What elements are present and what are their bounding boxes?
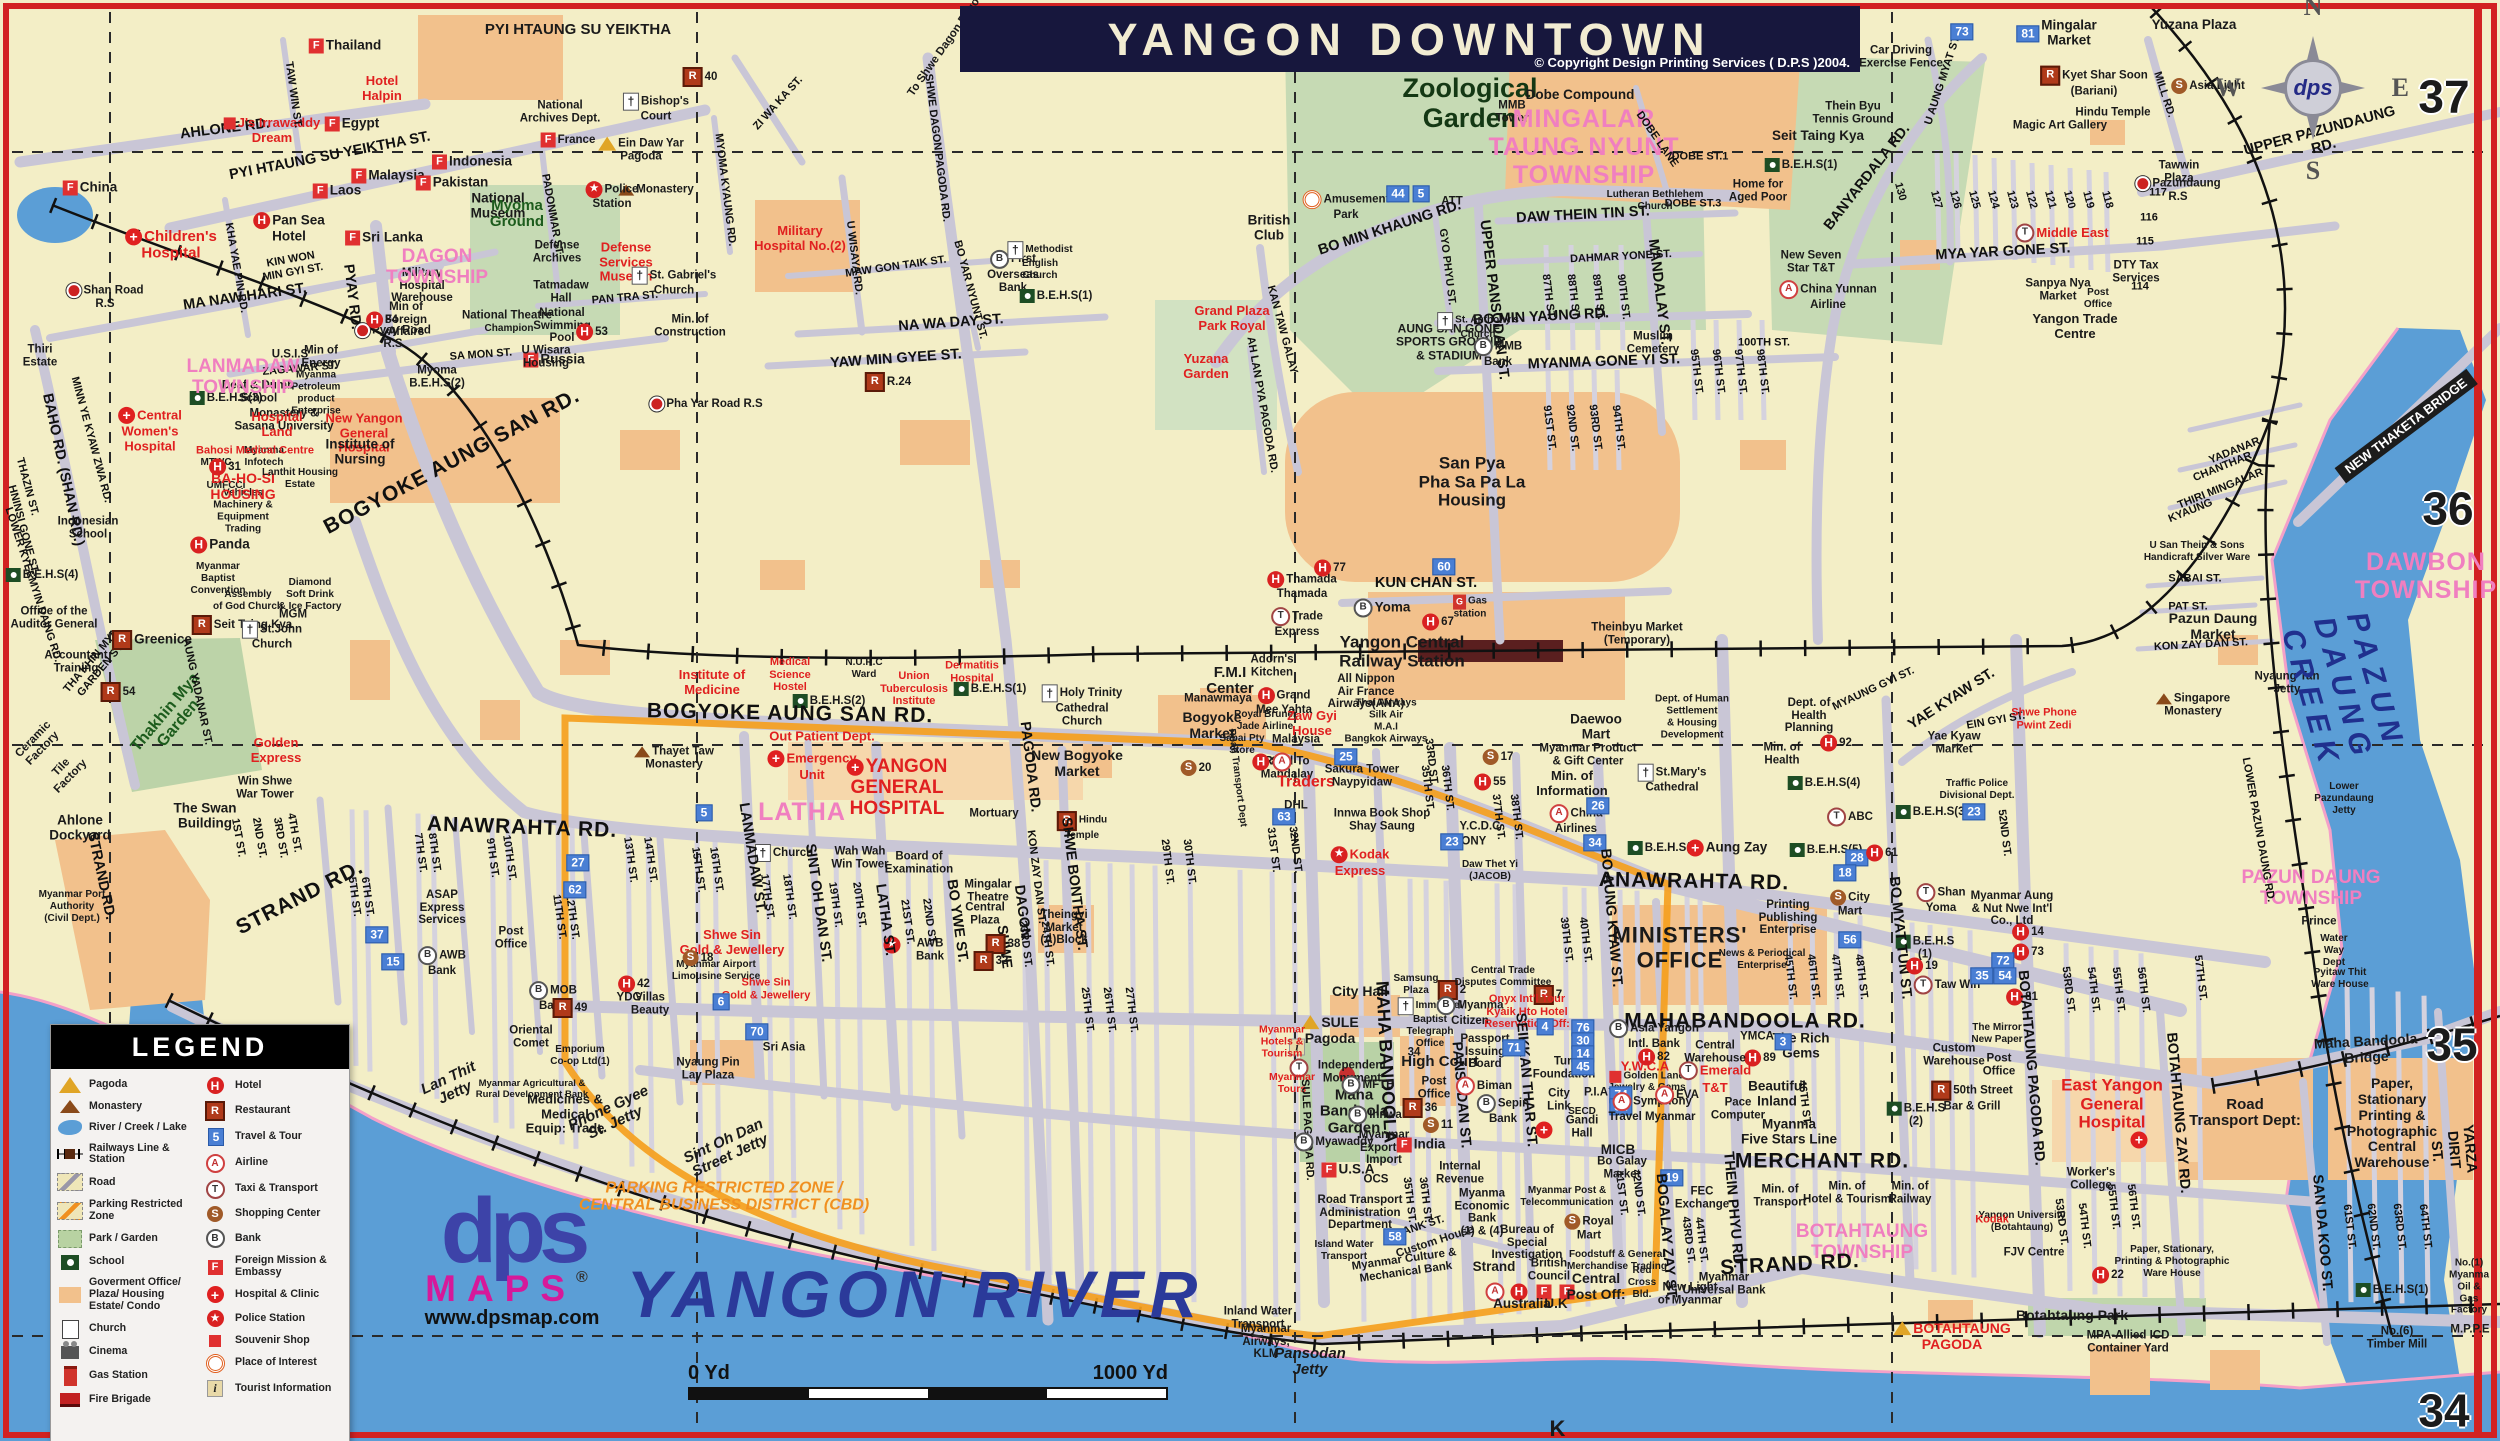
street-label: 16TH ST. xyxy=(706,846,725,893)
a-icon: A xyxy=(1273,753,1292,772)
f-icon: F xyxy=(63,181,78,196)
map-label: BInnwa xyxy=(1348,1106,1402,1125)
map-label: Sanpya Nya Market xyxy=(2025,277,2090,302)
map-label: Military Hospital No.(2) xyxy=(754,223,846,252)
street-label: 126 xyxy=(1945,189,1962,210)
map-label: LATHA xyxy=(758,798,846,826)
street-label: 118 xyxy=(2098,190,2115,210)
map-label: YDG xyxy=(617,992,642,1005)
map-label: Kodak xyxy=(1975,1215,2009,1228)
legend-item-label: Goverment Office/ Plaza/ Housing Estate/… xyxy=(89,1277,199,1313)
map-label: H92 xyxy=(1820,735,1852,752)
map-label: Hotel Halpin xyxy=(362,73,402,102)
legend-item: HHotel xyxy=(203,1077,345,1094)
legend-river-creek-lake-icon xyxy=(58,1120,82,1135)
street-label: 122 xyxy=(2021,189,2038,210)
legend-item-label: Bank xyxy=(235,1233,261,1245)
map-label: Myanmar Agricultural & Rural Development… xyxy=(476,1079,588,1101)
map-label: Post Office xyxy=(1983,1052,2016,1077)
map-label: †Methodist English Church xyxy=(1007,241,1072,283)
legend-hospital-clinic-icon: + xyxy=(207,1286,224,1303)
legend-foreign-mission-embassy-icon: F xyxy=(208,1260,223,1275)
r-icon: R xyxy=(101,682,121,702)
street-label: 95TH ST. xyxy=(1686,348,1704,395)
map-label: YANGON RIVER xyxy=(627,1254,1204,1330)
street-label: KON ZAY DAN ST. xyxy=(2154,637,2249,655)
legend-road-icon xyxy=(57,1173,83,1191)
map-label: FPakistan xyxy=(416,176,489,191)
legend-item-label: Shopping Center xyxy=(235,1208,320,1220)
map-label: †St. Anthony's Church xyxy=(1437,312,1519,342)
street-label: 64TH ST. xyxy=(2415,1203,2433,1250)
cross-icon: + xyxy=(847,759,864,776)
legend-item: Road xyxy=(57,1173,199,1191)
ch-icon: † xyxy=(242,621,258,639)
map-label: Medical Science Hostel xyxy=(769,657,811,695)
map-label: Thiri Estate xyxy=(23,343,58,368)
map-label: R49 xyxy=(553,998,588,1018)
f-icon: F xyxy=(1321,1163,1336,1178)
map-label: 62 xyxy=(563,881,586,898)
f-icon: F xyxy=(416,176,431,191)
map-label: †Bishop's Court xyxy=(623,93,689,124)
page-number: 36 xyxy=(2422,482,2473,535)
legend-item-label: Cinema xyxy=(89,1346,127,1358)
street-label: 13TH ST. xyxy=(620,836,639,883)
map-label: Amusement Park xyxy=(1303,190,1390,222)
poi-icon xyxy=(1303,190,1322,209)
map-label: Dobe Compound xyxy=(1526,88,1635,103)
map-label: Central Trade Disputes Committee xyxy=(1455,966,1552,990)
map-label: Ceramic Factory xyxy=(13,719,63,769)
h-icon: H xyxy=(2092,1267,2109,1284)
map-label: Myanmar Aung & Nut Nwe Int'l Co., Ltd xyxy=(1971,890,2054,928)
ch-icon: † xyxy=(1638,764,1654,782)
map-label: Internal Revenue xyxy=(1436,1160,1484,1185)
map-label: Indonesian School xyxy=(58,515,119,540)
map-label: Win Shwe War Tower xyxy=(236,775,294,800)
f-icon: F xyxy=(345,231,360,246)
map-canvas: AHLONE RD.MA NAW HARI ST.BAHO RD. (SHAN … xyxy=(0,0,2500,1441)
map-label: ASAP Express Services xyxy=(418,889,465,927)
legend-item: Fire Brigade xyxy=(57,1393,199,1407)
street-label: 26TH ST. xyxy=(1099,986,1117,1033)
street-label: 125 xyxy=(1964,189,1981,210)
map-label: + xyxy=(1536,1122,1555,1139)
b-icon: B xyxy=(1436,996,1455,1015)
map-label: TABC xyxy=(1827,808,1873,827)
street-label: 98TH ST. xyxy=(1752,348,1770,395)
map-label: B.E.H.S(1) xyxy=(1020,289,1093,303)
map-label: Australia xyxy=(1493,1297,1551,1312)
legend-item: BBank xyxy=(203,1229,345,1248)
map-label: Min. of Information xyxy=(1536,768,1608,797)
street-label: 25TH ST. xyxy=(1077,986,1095,1033)
street-label: MYOMA KYAUNG RD. xyxy=(711,133,737,247)
legend-monastery-icon xyxy=(60,1100,80,1113)
map-labels-layer: AHLONE RD.MA NAW HARI ST.BAHO RD. (SHAN … xyxy=(0,0,2500,1441)
rs-icon xyxy=(2135,176,2150,191)
map-label: Ein Daw Yar Pagoda xyxy=(598,137,684,164)
street-label: 121 xyxy=(2040,189,2057,210)
compass-w-label: W xyxy=(2215,73,2241,103)
t-icon: T xyxy=(1271,607,1290,626)
legend-shopping-center-icon: S xyxy=(207,1206,223,1222)
map-label: Road Transport Dept: xyxy=(2189,1097,2301,1130)
legend-item-label: Hotel xyxy=(235,1080,261,1092)
map-label: Pansodan Jetty xyxy=(1274,1346,1346,1379)
street-label: DOBE ST.1 xyxy=(1672,152,1729,165)
map-label: Lanthit Housing Estate xyxy=(262,468,338,492)
t-icon: T xyxy=(2015,224,2034,243)
street-label: LATHA ST. xyxy=(871,883,897,957)
legend-item: Church xyxy=(57,1320,199,1339)
ch-icon: † xyxy=(1437,312,1453,330)
legend-item: Goverment Office/ Plaza/ Housing Estate/… xyxy=(57,1277,199,1313)
map-label: Myoma B.E.H.S(2) xyxy=(409,364,465,389)
map-label: Mingalar Theatre xyxy=(964,878,1011,903)
map-label: No.(6) Timber Mill xyxy=(2367,1325,2428,1350)
cross-icon: + xyxy=(118,407,135,424)
street-label: MYA YAR GONE ST. xyxy=(1935,241,2071,264)
map-label: 5 xyxy=(696,804,713,821)
legend-right-column: HHotelRRestaurant5Travel & TourAAirlineT… xyxy=(203,1077,345,1407)
legend-item-label: Railways Line & Station xyxy=(89,1143,199,1167)
map-label: Magic Art Gallery xyxy=(2013,120,2107,133)
map-label: H55 xyxy=(1474,774,1506,791)
map-label: Botahtaung Park xyxy=(2016,1307,2128,1323)
street-label: 18TH ST. xyxy=(779,873,798,920)
map-label: Dept. of Human Settlement & Housing Deve… xyxy=(1655,694,1729,741)
map-label: M.P.P.E xyxy=(2450,1324,2489,1337)
legend-railways-line-station-icon xyxy=(57,1149,83,1159)
map-label: Mingalar Market xyxy=(2041,18,2097,47)
h-icon: H xyxy=(1267,571,1284,588)
map-label: 35 xyxy=(1970,967,1993,984)
map-label: B.E.H.S(1) xyxy=(954,682,1027,696)
street-label: 17TH ST. xyxy=(757,873,776,920)
map-label: The Mirror New Paper xyxy=(1971,1023,2022,1047)
map-label: Nyaung Pin Lay Plaza xyxy=(676,1056,739,1081)
f-icon: F xyxy=(541,133,556,148)
map-label: Post Office xyxy=(2084,288,2112,312)
map-label: Myanma Five Stars Line xyxy=(1741,1117,1837,1146)
dps-logo: dps xyxy=(392,1192,632,1270)
map-label: H77 xyxy=(1314,560,1346,577)
h-icon: H xyxy=(253,212,270,229)
ch-icon: † xyxy=(1007,241,1023,259)
map-label: Adorn's Kitchen xyxy=(1251,653,1294,678)
map-label: 58 xyxy=(1383,1228,1406,1245)
map-label: H61 xyxy=(1866,845,1898,862)
sch-icon xyxy=(1765,158,1780,172)
map-label: 63 xyxy=(1272,808,1295,825)
map-label: Yuzana Garden xyxy=(1183,351,1229,380)
legend-item: +Hospital & Clinic xyxy=(203,1286,345,1303)
a-icon: A xyxy=(1612,1092,1631,1111)
b-icon: B xyxy=(1354,599,1373,618)
map-label: National Archives Dept. xyxy=(520,99,601,124)
street-label: 115 xyxy=(2136,237,2154,250)
map-label: BSepin Bank xyxy=(1477,1094,1529,1126)
s-icon: S xyxy=(683,950,699,966)
street-label: 100TH ST. xyxy=(1738,338,1790,351)
a-icon: A xyxy=(1456,1077,1475,1096)
b-icon: B xyxy=(990,250,1009,269)
map-label: FChina xyxy=(63,181,118,196)
r-icon: R xyxy=(553,998,573,1018)
sch-icon xyxy=(1790,843,1805,857)
map-label: Bo Galay Market xyxy=(1597,1155,1647,1180)
map-label: Shwe Sin Gold & Jewellery xyxy=(722,977,811,1002)
legend-item: Pagoda xyxy=(57,1077,199,1093)
street-label: 36TH ST. xyxy=(1437,764,1455,811)
legend-item: Cinema xyxy=(57,1346,199,1359)
map-label: 71 xyxy=(1502,1039,1525,1056)
map-label: Road Transport Administration Department xyxy=(1318,1194,1403,1232)
compass-s-label: S xyxy=(2306,156,2320,186)
r-icon: R xyxy=(192,615,212,635)
map-label: DAGON TOWNSHIP xyxy=(386,247,488,289)
f-icon: F xyxy=(351,169,366,184)
map-label: B.E.H.S(4) xyxy=(6,568,79,582)
map-label: †St. Gabriel's Church xyxy=(632,267,717,298)
street-label: 30TH ST. xyxy=(1179,838,1197,885)
map-label: SCity Mart xyxy=(1830,890,1870,919)
legend-item: Gas Station xyxy=(57,1366,199,1386)
map-label: 25 xyxy=(1334,748,1357,765)
map-label: Central Plaza xyxy=(965,901,1005,926)
h-icon: H xyxy=(1258,687,1275,704)
a-icon: A xyxy=(1779,280,1798,299)
legend-airline-icon: A xyxy=(206,1154,225,1173)
sq-icon xyxy=(224,117,236,129)
h-icon: H xyxy=(1422,614,1439,631)
map-label: Y.C.D.C xyxy=(1460,821,1501,834)
map-label: Post Office xyxy=(495,925,528,950)
h-icon: H xyxy=(209,459,226,476)
map-label: Yangon Trade Centre xyxy=(2032,311,2117,340)
street-label: KIN WON MIN GYI ST. xyxy=(260,249,325,285)
map-label: Thein Byu Tennis Ground xyxy=(1813,100,1894,125)
h-icon: H xyxy=(190,537,207,554)
map-label: Board of Examination xyxy=(885,850,953,875)
street-label: 54TH ST. xyxy=(2074,1202,2092,1249)
r-icon: R xyxy=(2040,66,2060,86)
street-label: 61ST ST. xyxy=(2339,1204,2357,1250)
legend-item: Souvenir Shop xyxy=(203,1335,345,1347)
sch-icon xyxy=(1020,289,1035,303)
street-label: ANAWRAHTA RD. xyxy=(427,813,618,842)
map-label: Red Cross Bld. xyxy=(1628,1266,1656,1302)
map-label: PAZUN DAUNG CREEK xyxy=(2273,601,2412,779)
t-icon: T xyxy=(1827,808,1846,827)
legend-item: Railways Line & Station xyxy=(57,1143,199,1167)
map-label: Out Patient Dept. xyxy=(769,729,874,744)
map-label: †St.Mary's Cathedral xyxy=(1638,764,1707,795)
street-label: 97TH ST. xyxy=(1730,348,1748,395)
street-label: 123 xyxy=(2002,189,2019,210)
map-label: B.E.H.S(1) xyxy=(2356,1283,2429,1297)
street-label: 56TH ST. xyxy=(2133,966,2151,1013)
r-icon: R xyxy=(974,951,994,971)
map-label: B.E.H.S(4) xyxy=(1788,776,1861,790)
map-label: Lower Pazundaung Jetty xyxy=(2314,782,2373,818)
map-label: British Council xyxy=(1528,1257,1570,1282)
legend-goverment-office-plaza-housing-estate-condo-icon xyxy=(59,1287,81,1303)
map-label: Daw Thet Yi (JACOB) xyxy=(1462,860,1518,884)
street-label: 117 xyxy=(2149,188,2167,201)
map-label: Min of Energy xyxy=(302,344,341,369)
street-label: SHWE DAGON PAGODA RD. xyxy=(921,73,952,223)
map-label: +Children's Hospital xyxy=(125,228,217,261)
map-label: Manawmaya xyxy=(1184,693,1252,706)
street-label: 63RD ST. xyxy=(2389,1203,2407,1251)
compass-e-label: E xyxy=(2392,73,2409,103)
map-label: Min. of Hotel & Tourism xyxy=(1803,1180,1891,1205)
legend-item-label: Pagoda xyxy=(89,1079,127,1091)
map-label: H84 xyxy=(366,312,398,329)
map-label: FIndonesia xyxy=(432,155,512,170)
map-label: Prince xyxy=(2301,916,2336,929)
legend-police-station-icon: ★ xyxy=(207,1310,224,1327)
title-banner: YANGON DOWNTOWN © Copyright Design Print… xyxy=(960,6,1860,72)
map-label: H73 xyxy=(2012,944,2044,961)
map-label: HPan Sea Hotel xyxy=(253,212,325,244)
ch-icon: † xyxy=(1042,684,1058,702)
map-label: B.E.H.S (2) xyxy=(1887,1102,1946,1129)
map-label: Dept. of Health Planning xyxy=(1785,697,1834,735)
b-icon: B xyxy=(1348,1106,1367,1125)
map-label: San Pya Pha Sa Pa La Housing xyxy=(1419,454,1526,510)
legend-school-icon xyxy=(61,1255,79,1270)
s-icon: S xyxy=(1483,749,1499,765)
legend-item-label: Monastery xyxy=(89,1101,142,1113)
map-label: K xyxy=(1550,1415,1567,1440)
h-icon: H xyxy=(1820,735,1837,752)
street-label: 90TH ST. xyxy=(1613,273,1631,320)
map-label: TMiddle East xyxy=(2015,224,2108,243)
legend-item-label: Police Station xyxy=(235,1313,305,1325)
map-label: Samsung Plaza xyxy=(1393,974,1438,998)
legend-item-label: Fire Brigade xyxy=(89,1394,151,1406)
map-label: Paper, Stationary, Printing & Photograph… xyxy=(2115,1245,2230,1281)
map-label: 23 xyxy=(1440,833,1463,850)
sch-icon xyxy=(954,682,969,696)
map-label: Myanmar Product & Gift Center xyxy=(1539,742,1636,767)
map-label: Institute of Nursing xyxy=(326,437,395,466)
map-label: SULE Pagoda xyxy=(1301,1014,1358,1046)
map-label: BMMB Bank xyxy=(1474,337,1522,369)
legend-header: LEGEND xyxy=(51,1025,349,1069)
cross-icon: + xyxy=(1536,1122,1553,1139)
map-label: H42 xyxy=(618,976,650,993)
map-label: Lutheran Bethlehem Church xyxy=(1607,190,1704,214)
street-label: 92ND ST. xyxy=(1562,404,1580,452)
legend-item: iTourist Information xyxy=(203,1380,345,1397)
b-icon: B xyxy=(418,946,437,965)
legend-item-label: Tourist Information xyxy=(235,1383,331,1395)
street-label: 56TH ST. xyxy=(2123,1183,2141,1230)
legend-travel-tour-icon: 5 xyxy=(208,1128,225,1146)
cross-icon: + xyxy=(767,750,784,767)
map-label: GGas station xyxy=(1453,595,1487,622)
street-label: U WISAYA RD. xyxy=(842,220,864,296)
map-label: Car Driving Exercise Fence xyxy=(1859,44,1943,69)
street-label: 29TH ST. xyxy=(1157,838,1175,885)
map-label: Muslim Cemetery xyxy=(1627,330,1679,355)
map-label: +YANGON GENERAL HOSPITAL xyxy=(847,757,948,819)
map-label: BOTAHTAUNG PAGODA xyxy=(1893,1320,2010,1352)
legend-tourist-information-icon: i xyxy=(207,1380,223,1397)
h-icon: H xyxy=(1314,560,1331,577)
street-label: 15TH ST. xyxy=(688,846,707,893)
legend-item: Parking Restricted Zone xyxy=(57,1199,199,1223)
map-label: LANMADAW TOWNSHIP xyxy=(187,357,300,399)
map-label: H22 xyxy=(2092,1267,2124,1284)
map-label: R54 xyxy=(101,682,136,702)
map-label: Bahosi Medical Centre xyxy=(196,446,314,459)
street-label: 1ST ST. xyxy=(227,818,246,859)
map-label: S17 xyxy=(1483,749,1514,765)
map-label: +Emergency Unit xyxy=(767,750,856,782)
pag-icon xyxy=(1893,1321,1911,1335)
map-label: FFrance xyxy=(541,133,596,148)
publisher-url: www.dpsmap.com xyxy=(392,1307,632,1330)
legend-restaurant-icon: R xyxy=(205,1101,225,1121)
star-icon: ★ xyxy=(1331,846,1348,863)
sq-icon xyxy=(1609,1071,1621,1083)
street-label: 127 xyxy=(1926,189,1943,210)
map-label: TShan Yoma xyxy=(1916,883,1965,915)
map-label: FEgypt xyxy=(325,117,380,132)
legend-item-label: Gas Station xyxy=(89,1370,148,1382)
map-label: Sint Oh Dan Street Jetty xyxy=(681,1116,773,1182)
map-label: The Swan Building xyxy=(173,801,236,830)
legend-item-label: Foreign Mission & Embassy xyxy=(235,1255,345,1279)
legend-item-label: Church xyxy=(89,1323,126,1335)
map-label: FMalaysia xyxy=(351,169,424,184)
map-label: Thai Airways Silk Air M.A.I Bangkok Airw… xyxy=(1345,698,1428,745)
street-label: 39TH ST. xyxy=(1556,916,1574,963)
h-icon: H xyxy=(1474,774,1491,791)
map-label: MPA-Allied ICD Container Yard xyxy=(2087,1329,2170,1354)
map-label: 26 xyxy=(1586,797,1609,814)
map-label: 15 xyxy=(381,953,404,970)
legend-left-column: PagodaMonasteryRiver / Creek / LakeRailw… xyxy=(57,1077,199,1407)
a-icon: A xyxy=(1655,1086,1674,1105)
street-label: 94TH ST. xyxy=(1608,404,1626,451)
map-label: Printing Publishing Enterprise xyxy=(1759,899,1818,937)
street-label: 124 xyxy=(1983,189,2000,210)
street-label: 10TH ST. xyxy=(499,834,518,881)
street-label: KUN CHAN ST. xyxy=(1375,576,1477,592)
cross-icon: + xyxy=(125,228,142,245)
map-label: 56 xyxy=(1838,931,1861,948)
street-label: 27TH ST. xyxy=(1121,986,1139,1033)
map-label: Wah Wah Win Tower xyxy=(831,845,888,870)
map-label: †Holy Trinity Cathedral Church xyxy=(1042,684,1123,727)
map-label: Golden Express xyxy=(251,735,302,764)
map-label: 60 xyxy=(1432,558,1455,575)
map-label: FIndia xyxy=(1397,1138,1446,1153)
h-icon: H xyxy=(1866,845,1883,862)
map-label: FJV Centre xyxy=(2004,1247,2065,1260)
map-label: Sri Asia xyxy=(763,1042,805,1055)
b-icon: B xyxy=(1294,1133,1313,1152)
map-label: Yuzana Plaza xyxy=(2152,18,2237,33)
map-label: RR.24 xyxy=(865,372,911,392)
